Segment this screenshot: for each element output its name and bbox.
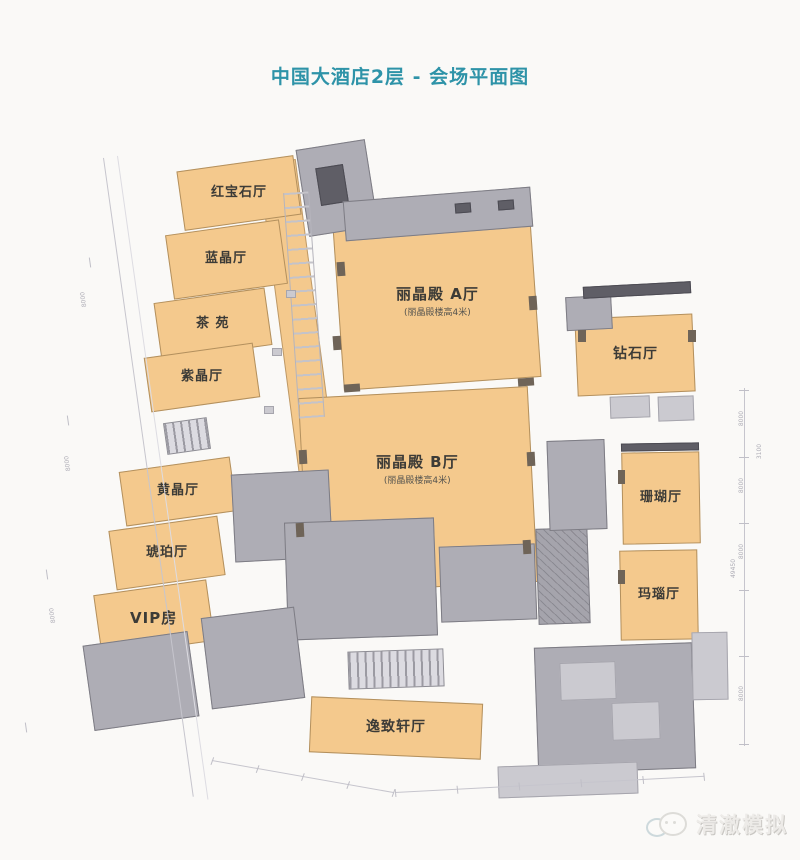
service-block: [546, 439, 607, 531]
dim-tick: [395, 789, 397, 797]
room-label: 茶 苑: [196, 316, 230, 332]
door-marker: [618, 570, 625, 584]
door-marker: [333, 336, 342, 351]
hall-b-name: 丽晶殿 B厅: [376, 453, 459, 471]
room-label: 丽晶殿 B厅 (丽晶殿楼高4米): [376, 453, 459, 487]
pantry-block: [610, 395, 651, 418]
room-label: 紫晶厅: [181, 369, 223, 385]
door-marker: [296, 523, 305, 537]
dim-tick: [67, 415, 69, 425]
service-block: [284, 517, 438, 640]
door-marker: [518, 377, 535, 386]
room-label: 红宝石厅: [211, 185, 267, 201]
door-marker: [337, 262, 346, 277]
room-label: 丽晶殿 A厅 (丽晶殿楼高4米): [396, 285, 479, 319]
furniture: [286, 290, 296, 298]
furniture: [264, 406, 274, 414]
room-coral-hall: 珊瑚厅: [621, 451, 701, 544]
dim-line-bottom-left: [212, 760, 394, 793]
furniture: [272, 348, 282, 356]
room-label: 钻石厅: [613, 346, 658, 364]
dim-tick: [739, 457, 749, 458]
dim-label: 8000: [738, 686, 745, 701]
dim-tick: [46, 569, 48, 579]
dim-tick: [739, 390, 749, 391]
stairs: [163, 417, 211, 455]
floor-plan-page: 中国大酒店2层 - 会场平面图 红宝石厅 蓝晶厅 茶 苑 紫晶厅 黄晶厅 琥珀厅…: [0, 0, 800, 860]
room-label: 珊瑚厅: [640, 490, 682, 506]
room-blue-crystal-hall: 蓝晶厅: [165, 219, 288, 299]
room-label: 琥珀厅: [146, 545, 188, 561]
dim-tick: [739, 590, 749, 591]
chat-bubble-large: [659, 812, 687, 836]
dim-label-offset: 3100: [756, 444, 763, 459]
room-label: VIP房: [130, 609, 177, 628]
dim-tick: [346, 781, 350, 789]
dim-label: 8000: [738, 544, 745, 559]
wall-band: [621, 442, 699, 451]
door-marker: [299, 450, 308, 464]
room-label: 逸致轩厅: [366, 719, 426, 737]
stage-fixture: [498, 199, 515, 210]
door-marker: [527, 452, 536, 466]
dim-tick: [703, 773, 705, 781]
room-label: 蓝晶厅: [205, 251, 247, 267]
dim-tick: [739, 744, 749, 745]
hall-a-note: (丽晶殿楼高4米): [396, 308, 479, 319]
service-block: [559, 661, 616, 701]
room-yizhixuan-hall: 逸致轩厅: [309, 696, 483, 759]
dim-tick: [210, 757, 214, 765]
dim-tick: [457, 786, 459, 794]
dim-label-total: 49450: [730, 559, 737, 578]
door-marker: [578, 330, 586, 342]
door-marker: [618, 470, 625, 484]
dim-tick: [642, 776, 644, 784]
room-label: 玛瑙厅: [638, 587, 680, 603]
dim-tick: [739, 523, 749, 524]
wall-band: [583, 281, 691, 299]
dim-label: 8000: [79, 291, 88, 307]
hall-b-note: (丽晶殿楼高4米): [376, 476, 459, 487]
pantry-block: [658, 395, 695, 421]
dim-tick: [739, 656, 749, 657]
door-marker: [529, 296, 538, 311]
chat-bubbles-icon: [646, 806, 688, 842]
dim-tick: [25, 722, 27, 732]
page-title: 中国大酒店2层 - 会场平面图: [0, 62, 800, 89]
door-marker: [344, 383, 361, 392]
stage-fixture: [455, 202, 472, 213]
escalator: [347, 648, 444, 689]
watermark-text: 清澈模拟: [696, 809, 788, 839]
room-agate-hall: 玛瑙厅: [619, 549, 699, 640]
hall-a-name: 丽晶殿 A厅: [396, 285, 479, 303]
dim-tick: [89, 257, 91, 267]
room-amber-hall: 琥珀厅: [108, 516, 225, 591]
dim-label: 8000: [738, 411, 745, 426]
door-marker: [523, 540, 532, 554]
service-block: [315, 164, 349, 206]
room-citrine-hall: 黄晶厅: [119, 456, 238, 526]
dim-label: 8000: [48, 607, 57, 623]
service-block: [565, 295, 613, 331]
watermark: 清澈模拟: [646, 806, 788, 842]
service-block: [439, 543, 538, 622]
service-block: [611, 701, 660, 741]
door-marker: [688, 330, 696, 342]
service-block: [691, 632, 728, 701]
elevator-core: [535, 527, 590, 625]
dim-label: 8000: [63, 455, 72, 471]
dim-label: 8000: [738, 478, 745, 493]
dim-tick: [256, 765, 260, 773]
service-block: [201, 607, 306, 710]
dim-tick: [301, 773, 305, 781]
